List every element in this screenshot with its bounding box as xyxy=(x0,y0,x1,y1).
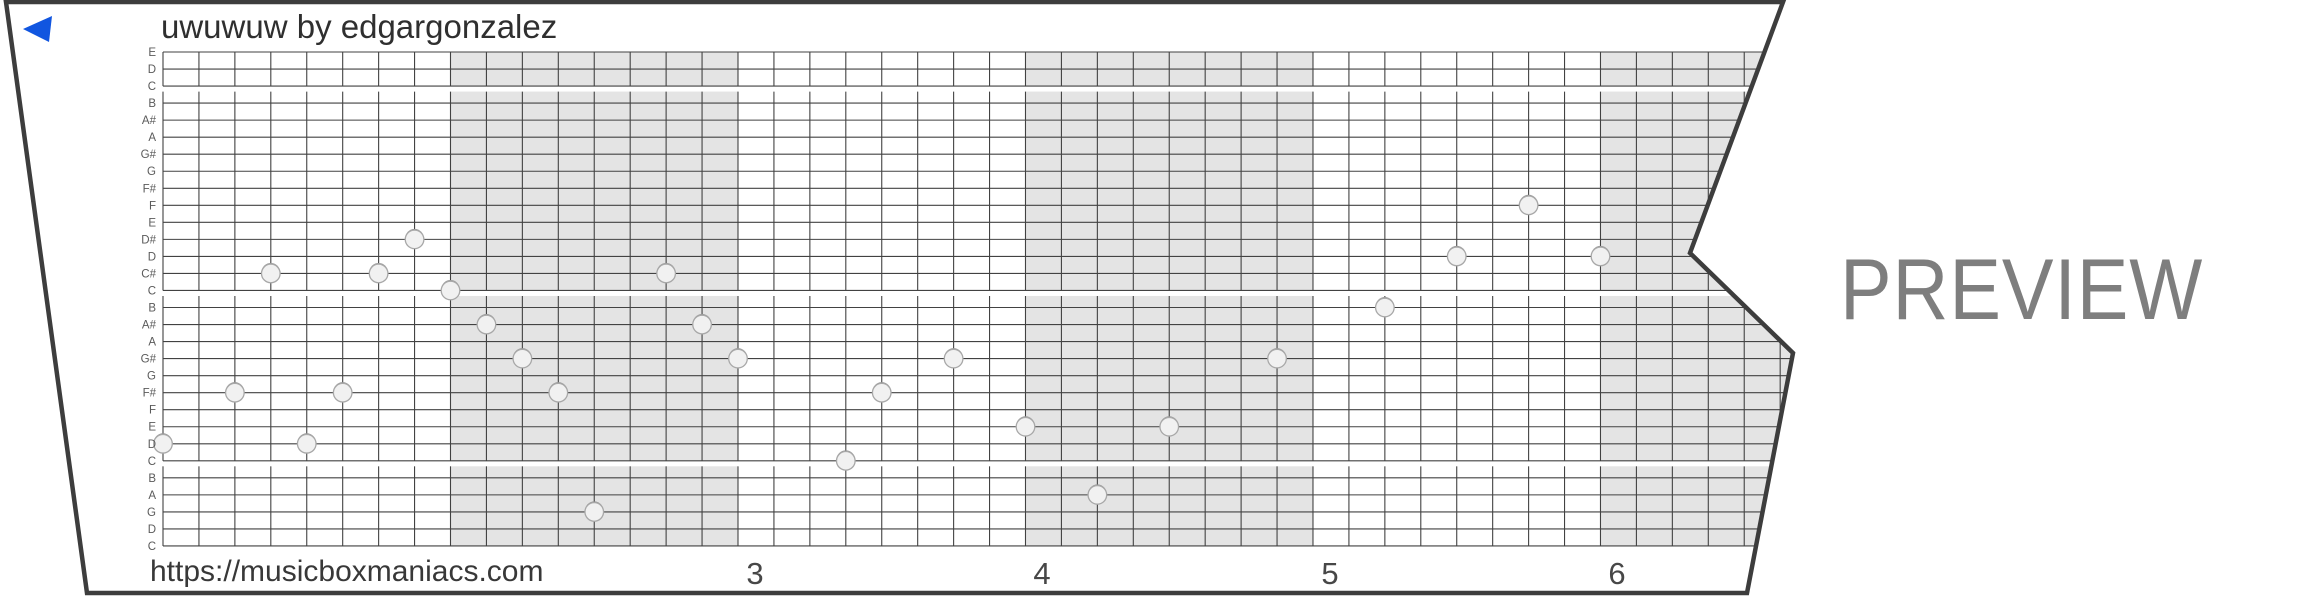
row-label: F# xyxy=(143,183,157,195)
page-title: uwuwuw by edgargonzalez xyxy=(161,9,557,45)
note-hole xyxy=(262,263,281,283)
row-label: G# xyxy=(141,149,157,161)
measure-number: 5 xyxy=(1321,556,1338,591)
row-label: A xyxy=(148,490,156,502)
row-label: B xyxy=(148,98,156,110)
note-hole xyxy=(585,501,604,521)
note-hole xyxy=(944,348,963,368)
note-hole xyxy=(1591,246,1610,266)
row-label: A# xyxy=(142,320,157,332)
strip-paper xyxy=(6,2,1793,593)
note-hole xyxy=(693,314,712,334)
row-label: E xyxy=(148,422,156,434)
note-hole xyxy=(477,314,496,334)
row-label: G# xyxy=(141,354,157,366)
row-label: D xyxy=(148,64,156,76)
row-label: A xyxy=(148,132,156,144)
row-label: C# xyxy=(141,268,156,280)
footer-url: https://musicboxmaniacs.com xyxy=(150,557,543,587)
measure-number: 3 xyxy=(746,556,763,591)
note-hole xyxy=(657,263,676,283)
row-label: A xyxy=(148,337,156,349)
note-hole xyxy=(1447,246,1466,266)
row-label: A# xyxy=(142,115,157,127)
row-label: B xyxy=(148,303,156,315)
measure-number: 4 xyxy=(1033,556,1050,591)
note-hole xyxy=(1376,297,1395,317)
row-label: E xyxy=(148,47,156,59)
row-label: D xyxy=(148,439,156,451)
note-hole xyxy=(297,433,316,453)
row-label: G xyxy=(147,166,156,178)
note-hole xyxy=(226,382,245,402)
measure-number: 6 xyxy=(1608,556,1625,591)
note-hole xyxy=(837,450,856,470)
note-hole xyxy=(405,229,424,249)
row-label: G xyxy=(147,371,156,383)
note-hole xyxy=(369,263,388,283)
note-hole xyxy=(513,348,532,368)
row-label: D xyxy=(148,251,156,263)
row-label: F xyxy=(149,200,156,212)
note-hole xyxy=(729,348,748,368)
row-label: F xyxy=(149,405,156,417)
note-hole xyxy=(872,382,891,402)
row-label: C xyxy=(148,285,156,297)
row-label: G xyxy=(147,507,156,519)
note-hole xyxy=(1160,416,1179,436)
row-label: D# xyxy=(141,234,156,246)
row-label: C xyxy=(148,541,156,553)
note-hole xyxy=(1016,416,1035,436)
note-hole xyxy=(441,280,460,300)
preview-watermark: PREVIEW xyxy=(1840,247,2203,333)
row-label: C xyxy=(148,456,156,468)
row-label: E xyxy=(148,217,156,229)
row-label: C xyxy=(148,81,156,93)
note-hole xyxy=(549,382,568,402)
note-hole xyxy=(154,433,173,453)
note-hole xyxy=(1268,348,1287,368)
note-hole xyxy=(1088,484,1107,504)
note-hole xyxy=(1519,195,1538,215)
row-label: D xyxy=(148,524,156,536)
row-label: F# xyxy=(143,388,157,400)
note-hole xyxy=(333,382,352,402)
row-label: B xyxy=(148,473,156,485)
